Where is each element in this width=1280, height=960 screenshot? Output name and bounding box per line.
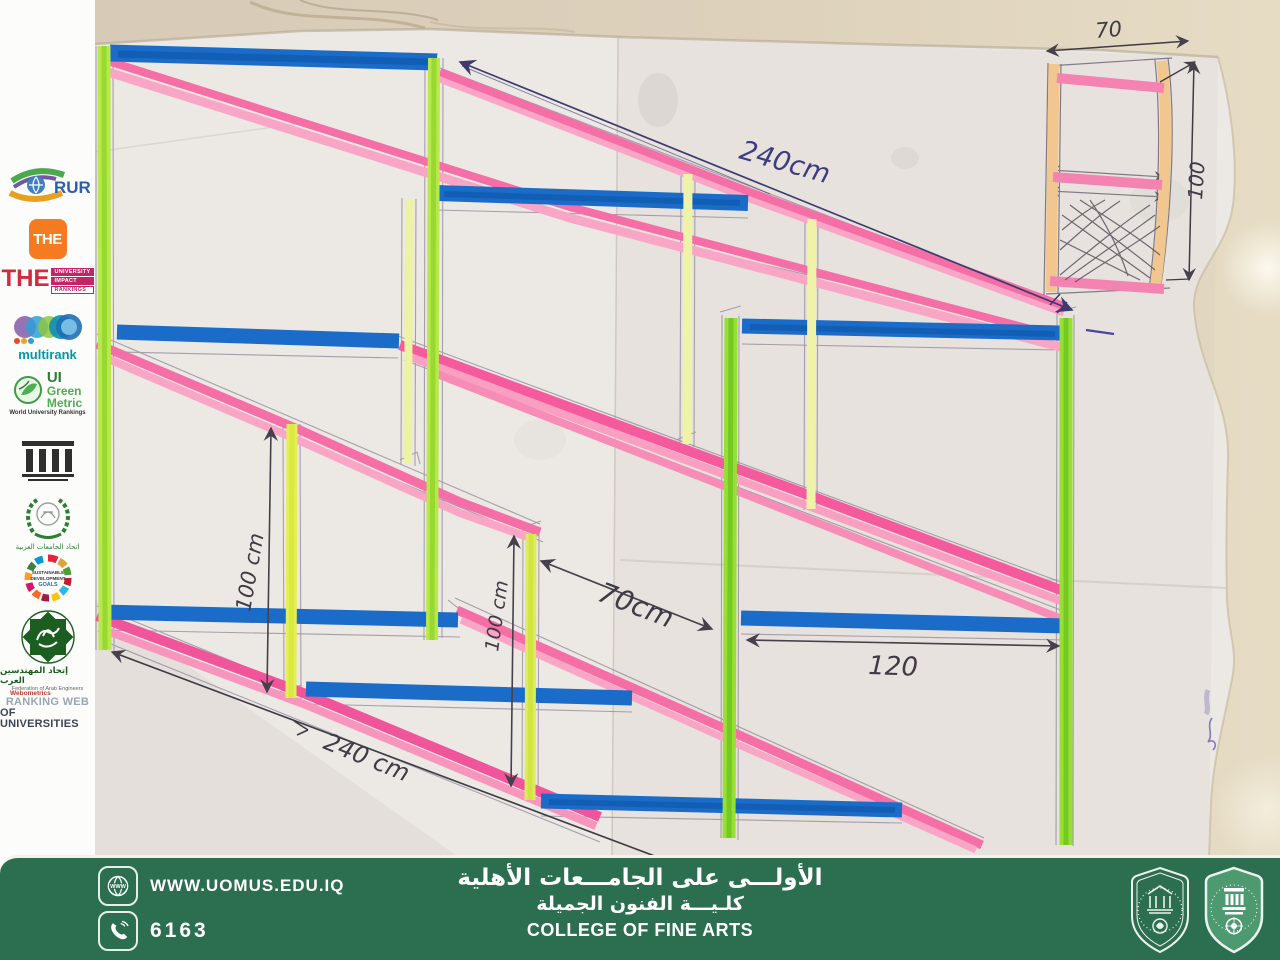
sdg-line1: SUSTAINABLE [31, 570, 63, 575]
greenmetric-tagline: World University Rankings [9, 410, 85, 416]
rur-wordmark: RUR [54, 178, 90, 197]
banner-arabic-line1: الأولـــى على الجامـــعات الأهلية [360, 864, 920, 893]
rur-logo: RUR [0, 165, 95, 207]
engineers-arabic-label: إتحاد المهندسين العرب [0, 666, 95, 686]
multirank-logo: multirank [0, 312, 95, 362]
page: 240cm 100 cm 100 cm 70cm 120 [0, 0, 1280, 960]
webometrics-line2: OF UNIVERSITIES [0, 708, 95, 730]
website-url[interactable]: WWW.UOMUS.EDU.IQ [150, 876, 344, 896]
rur-eye-icon: RUR [6, 165, 90, 207]
sdg-line2: DEVELOPMENT [30, 576, 65, 581]
arab-engineers-logo: إتحاد المهندسين العرب Federation of Arab… [0, 610, 95, 692]
impact-line-rankings: RANKINGS [51, 286, 93, 294]
fine-arts-emblem [1128, 866, 1192, 954]
sdg-logo: SUSTAINABLE DEVELOPMENT GOALS [0, 554, 95, 602]
globe-www-icon: WWW [98, 866, 138, 906]
impact-the-wordmark: THE [1, 268, 49, 290]
phone-icon [98, 911, 138, 951]
university-columns-logo [0, 441, 95, 481]
contact-block: WWW WWW.UOMUS.EDU.IQ 6163 [98, 866, 344, 951]
columns-icon [22, 441, 74, 481]
webometrics-logo: Webometrics RANKING WEB OF UNIVERSITIES [0, 690, 95, 730]
laurel-wreath-icon [23, 494, 73, 542]
website-row: WWW WWW.UOMUS.EDU.IQ [98, 866, 344, 906]
banner-arabic-line2: كلـيـــة الفنون الجميلة [360, 893, 920, 917]
dim-bay-width: 120 [868, 651, 919, 683]
dim-detail-width: 70 [1094, 17, 1123, 43]
engineers-star-icon [21, 610, 75, 664]
impact-line-impact: IMPACT [51, 277, 93, 285]
phone-number[interactable]: 6163 [150, 919, 209, 943]
banner-english-line: COLLEGE OF FINE ARTS [360, 919, 920, 942]
sketch-photo: 240cm 100 cm 100 cm 70cm 120 [95, 0, 1280, 858]
greenmetric-globe-icon [13, 375, 43, 405]
multirank-circles-icon [9, 312, 87, 346]
arab-universities-logo: اتحاد الجامعات العربية [0, 494, 95, 551]
greenmetric-logo: UI Green Metric World University Ranking… [0, 370, 95, 416]
emblems [1128, 866, 1266, 954]
shelf-sketch-svg: 240cm 100 cm 100 cm 70cm 120 [95, 0, 1280, 858]
banner-titles: الأولـــى على الجامـــعات الأهلية كلـيــ… [360, 864, 920, 941]
university-emblem [1202, 866, 1266, 954]
dim-detail-height: 100 [1183, 161, 1210, 201]
svg-text:WWW: WWW [110, 884, 127, 890]
webometrics-line1: RANKING WEB [6, 697, 89, 708]
the-logo: THE [0, 219, 95, 259]
multirank-wordmark: multirank [18, 347, 77, 362]
the-icon: THE [29, 219, 67, 259]
university-banner: WWW WWW.UOMUS.EDU.IQ 6163 الأولـــى على … [0, 855, 1280, 960]
greenmetric-metric: Metric [47, 397, 82, 409]
greenmetric-ui: UI [47, 370, 82, 385]
sdg-wheel-icon: SUSTAINABLE DEVELOPMENT GOALS [24, 554, 72, 602]
rankings-sidebar: RUR THE THE UNIVERSITY IMPACT RANKINGS [0, 0, 95, 858]
sdg-line3: GOALS [38, 582, 58, 588]
impact-line-university: UNIVERSITY [51, 268, 93, 276]
the-impact-logo: THE UNIVERSITY IMPACT RANKINGS [0, 268, 95, 295]
phone-row: 6163 [98, 911, 344, 951]
arab-universities-label: اتحاد الجامعات العربية [16, 543, 80, 551]
